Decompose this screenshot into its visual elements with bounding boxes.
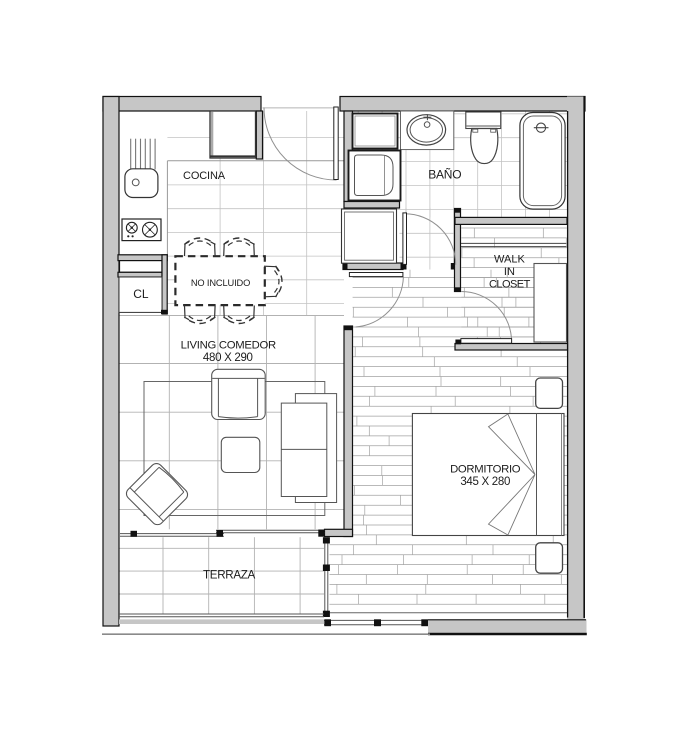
svg-text:COCINA: COCINA [183,170,226,182]
svg-text:CL: CL [133,287,149,301]
svg-text:480 X 290: 480 X 290 [203,352,253,364]
svg-text:LIVING COMEDOR: LIVING COMEDOR [181,340,276,352]
svg-text:345 X 280: 345 X 280 [460,476,510,488]
svg-text:DORMITORIO: DORMITORIO [450,464,521,476]
svg-text:BAÑO: BAÑO [428,168,461,182]
svg-text:TERRAZA: TERRAZA [203,569,256,582]
svg-text:CLOSET: CLOSET [489,278,531,290]
svg-text:WALK: WALK [494,253,525,265]
svg-text:IN: IN [504,266,515,278]
svg-text:NO INCLUIDO: NO INCLUIDO [191,278,250,288]
